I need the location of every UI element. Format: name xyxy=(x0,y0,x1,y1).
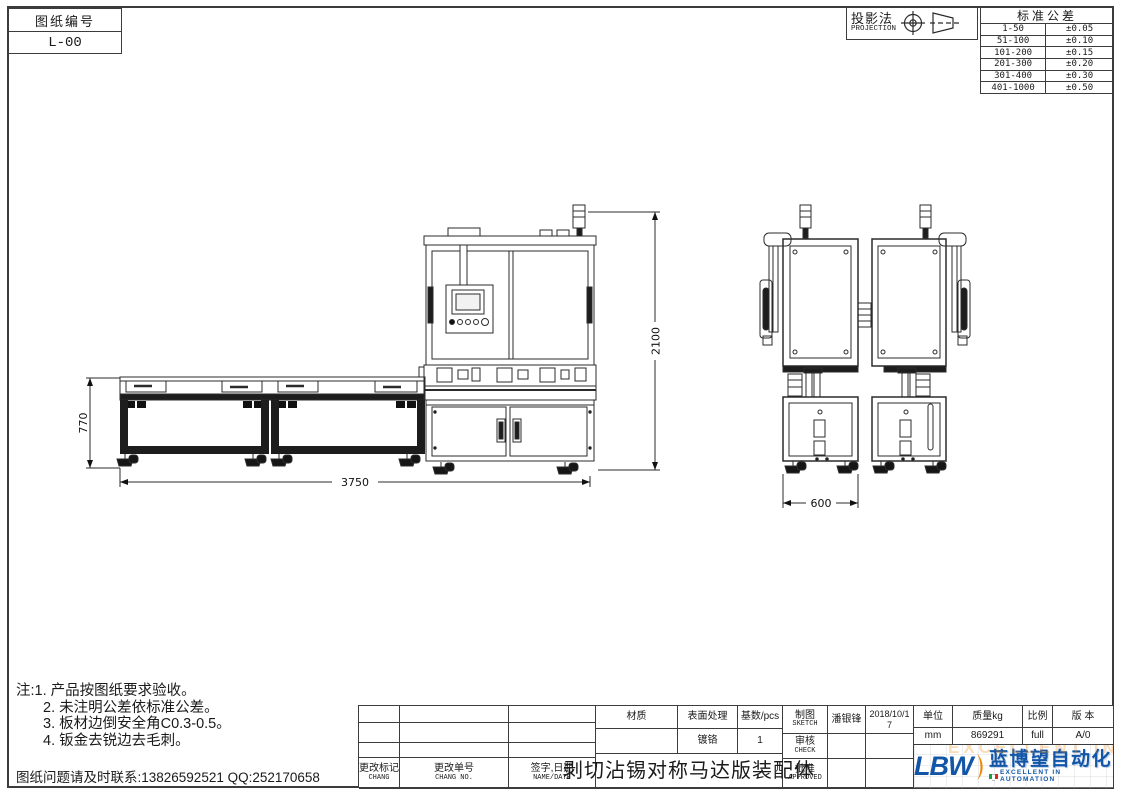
change-no-header: 更改单号 CHANG NO. xyxy=(400,758,509,789)
scale-label: 比例 xyxy=(1028,711,1048,722)
surface-header: 表面处理 xyxy=(678,706,738,729)
change-record-cell xyxy=(359,706,400,723)
material-value xyxy=(596,729,678,754)
version-header: 版 本 xyxy=(1053,706,1114,728)
change-no-label: 更改单号 xyxy=(434,763,474,774)
tower-light-icon xyxy=(573,205,585,236)
check-header: 审核 CHECK xyxy=(783,734,828,759)
approve-date-cell xyxy=(866,759,914,789)
sketch-label-en: SKETCH xyxy=(792,721,817,729)
right-handle-assembly xyxy=(939,233,970,345)
front-view xyxy=(117,205,596,474)
change-record-cell xyxy=(509,723,596,743)
dim-label-2100: 2100 xyxy=(650,327,663,355)
change-record-cell xyxy=(359,723,400,743)
note-line: 注:1. 产品按图纸要求验收。 xyxy=(16,683,356,700)
dim-label-600: 600 xyxy=(811,497,832,510)
change-record-cell xyxy=(400,723,509,743)
hmi-panel xyxy=(446,285,493,333)
material-header: 材质 xyxy=(596,706,678,729)
change-mark-label-en: CHANG xyxy=(368,775,389,783)
qty-value: 1 xyxy=(738,729,783,754)
left-handle-assembly xyxy=(760,233,791,345)
mass-value: 869291 xyxy=(953,728,1023,745)
dim-label-3750: 3750 xyxy=(341,476,369,489)
sketch-name-cell: 潘银锋 xyxy=(828,706,866,734)
mass-header: 质量kg xyxy=(953,706,1023,728)
tower-light-icon xyxy=(920,205,931,238)
version-label: 版 本 xyxy=(1072,711,1095,722)
change-mark-header: 更改标记 CHANG xyxy=(359,758,400,789)
italy-flag-icon xyxy=(989,774,998,779)
engineering-drawing-canvas: 770 2100 3750 xyxy=(0,0,1121,794)
change-record-cell xyxy=(509,706,596,723)
approve-name-cell xyxy=(828,759,866,789)
sketch-name: 潘银锋 xyxy=(832,714,862,725)
dim-label-770: 770 xyxy=(77,413,90,434)
approve-label-en: APPROVED xyxy=(788,775,822,783)
note-line: 2. 未注明公差依标准公差。 xyxy=(16,700,356,717)
logo-watermark: EXCELLENT IN AUTOMATION xyxy=(948,745,1114,757)
mass-label: 质量kg xyxy=(972,711,1003,722)
qty-header: 基数/pcs xyxy=(738,706,783,729)
surface-label: 表面处理 xyxy=(688,711,728,722)
company-logo: EXCELLENT IN AUTOMATION LBW 蓝博望自动化 EXCEL… xyxy=(914,745,1114,789)
change-record-cell xyxy=(509,743,596,758)
change-no-label-en: CHANG NO. xyxy=(435,775,473,783)
version-value-text: A/0 xyxy=(1075,730,1090,741)
tower-light-icon xyxy=(800,205,811,238)
mass-value-text: 869291 xyxy=(971,730,1004,741)
sketch-header: 制图 SKETCH xyxy=(783,706,828,734)
qty-value-text: 1 xyxy=(757,735,763,746)
approve-header: 批准 APPROVED xyxy=(783,759,828,789)
main-machine-front xyxy=(419,205,596,474)
check-date-cell xyxy=(866,734,914,759)
contact-line: 图纸问题请及时联系:13826592521 QQ:252170658 xyxy=(16,766,320,786)
scale-header: 比例 xyxy=(1023,706,1053,728)
change-mark-label: 更改标记 xyxy=(359,763,399,774)
unit-header: 单位 xyxy=(914,706,953,728)
drawing-sheet: 图纸编号 L-00 投影法 PROJECTION 标准公差 1-50 ±0.05… xyxy=(0,0,1121,794)
unit-value-text: mm xyxy=(925,730,942,741)
dimension-side-width: 600 xyxy=(783,474,858,510)
change-record-cell xyxy=(400,743,509,758)
sketch-date-cell: 2018/10/17 xyxy=(866,706,914,734)
check-label-en: CHECK xyxy=(794,748,815,756)
note-line: 4. 钣金去锐边去毛刺。 xyxy=(16,733,356,750)
surface-value-text: 镀铬 xyxy=(698,735,718,746)
dimension-table-height: 770 xyxy=(77,378,120,468)
version-value: A/0 xyxy=(1053,728,1114,745)
change-record-cell xyxy=(400,706,509,723)
unit-label: 单位 xyxy=(923,711,943,722)
material-label: 材质 xyxy=(627,711,647,722)
check-label: 审核 xyxy=(795,736,815,747)
note-line: 3. 板材边倒安全角C0.3-0.5。 xyxy=(16,716,356,733)
side-view xyxy=(760,205,970,473)
title-block: 更改标记 CHANG 更改单号 CHANG NO. 签字,日期 NAME/DAT… xyxy=(358,705,1114,788)
dimension-machine-height: 2100 xyxy=(588,212,663,470)
scale-value: full xyxy=(1023,728,1053,745)
table-legs xyxy=(120,400,425,448)
dimension-total-length: 3750 xyxy=(120,468,590,489)
scale-value-text: full xyxy=(1031,730,1044,741)
logo-tagline: EXCELLENT IN AUTOMATION xyxy=(1000,770,1113,783)
check-name-cell xyxy=(828,734,866,759)
unit-value: mm xyxy=(914,728,953,745)
part-title: 剥切沾锡对称马达版装配体 xyxy=(596,754,783,789)
change-record-cell xyxy=(359,743,400,758)
notes-block: 注:1. 产品按图纸要求验收。 2. 未注明公差依标准公差。 3. 板材边倒安全… xyxy=(16,683,356,749)
surface-value: 镀铬 xyxy=(678,729,738,754)
qty-label: 基数/pcs xyxy=(741,711,779,722)
